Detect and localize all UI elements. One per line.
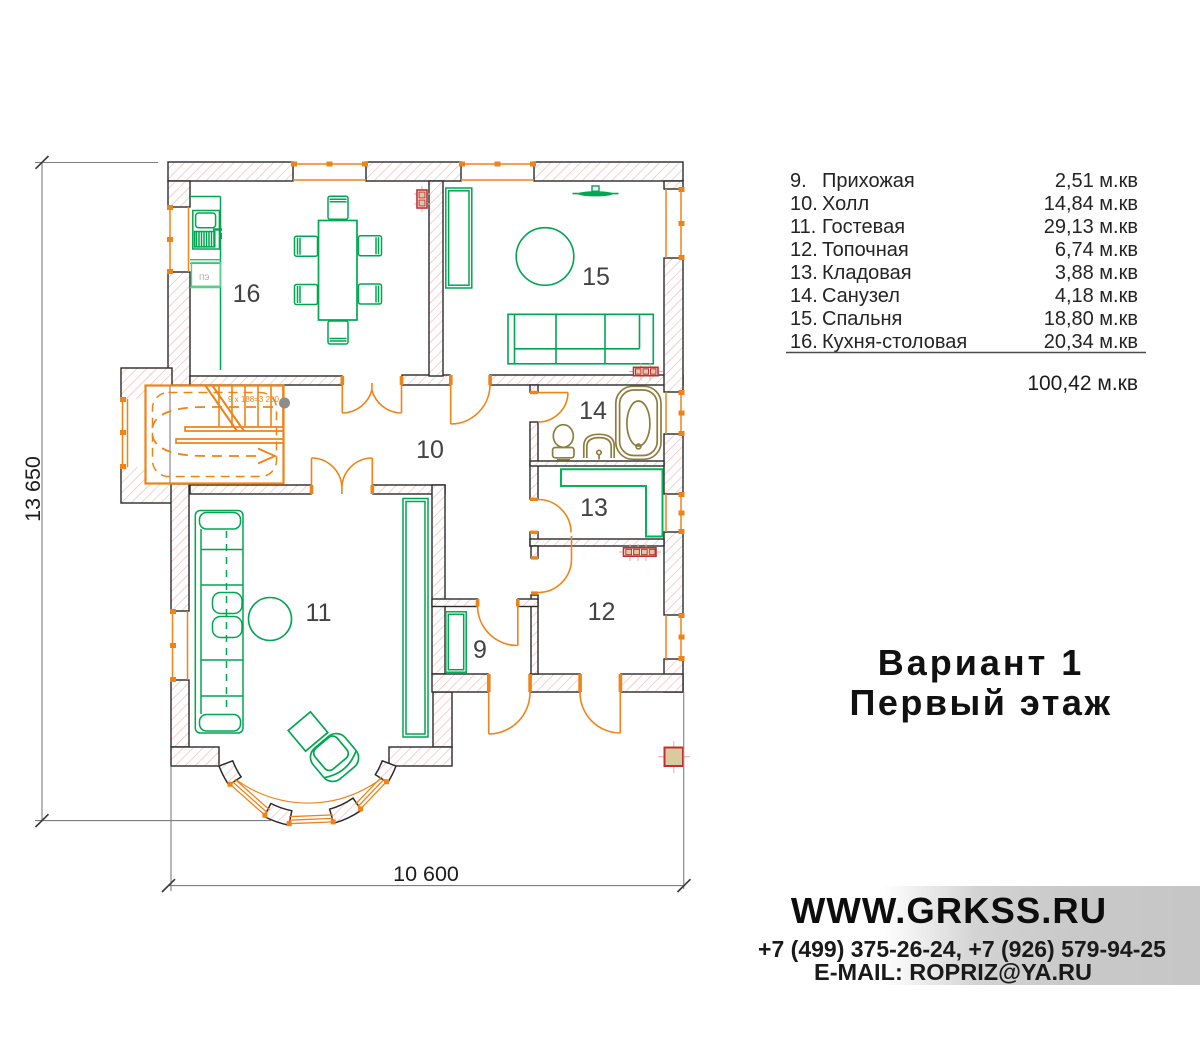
svg-text:9: 9 [473,636,487,664]
svg-text:12.: 12. [790,239,818,261]
svg-text:Вариант 1: Вариант 1 [878,642,1085,683]
svg-text:10: 10 [416,436,444,464]
svg-text:15: 15 [582,263,610,291]
svg-text:Первый этаж: Первый этаж [850,682,1113,723]
svg-text:11.: 11. [790,216,816,238]
svg-text:Прихожая: Прихожая [822,170,915,192]
svg-text:10.: 10. [790,193,818,215]
svg-text:18,80 м.кв: 18,80 м.кв [1044,308,1138,330]
svg-text:13: 13 [580,494,608,522]
svg-text:Кухня-столовая: Кухня-столовая [822,331,967,353]
svg-text:Гостевая: Гостевая [822,216,905,238]
svg-text:14: 14 [579,397,607,425]
svg-text:WWW.GRKSS.RU: WWW.GRKSS.RU [791,890,1107,931]
svg-text:Топочная: Топочная [822,239,909,261]
svg-text:6,74 м.кв: 6,74 м.кв [1055,239,1138,261]
svg-text:Кладовая: Кладовая [822,262,912,284]
svg-text:15.: 15. [790,308,818,330]
svg-text:14,84 м.кв: 14,84 м.кв [1044,193,1138,215]
svg-text:12: 12 [588,598,616,626]
svg-text:13.: 13. [790,262,818,284]
svg-text:Спальня: Спальня [822,308,902,330]
svg-text:Холл: Холл [822,193,869,215]
svg-text:11: 11 [306,599,332,627]
svg-text:16: 16 [233,280,261,308]
svg-text:E-MAIL: ROPRIZ@YA.RU: E-MAIL: ROPRIZ@YA.RU [814,959,1092,985]
svg-text:9.: 9. [790,170,807,192]
svg-text:9 х 188=3 200: 9 х 188=3 200 [228,395,279,404]
svg-text:20,34 м.кв: 20,34 м.кв [1044,331,1138,353]
svg-text:3,88 м.кв: 3,88 м.кв [1055,262,1138,284]
svg-text:16.: 16. [790,331,818,353]
svg-text:100,42 м.кв: 100,42 м.кв [1027,372,1138,395]
svg-text:пэ: пэ [199,272,210,283]
svg-text:2,51 м.кв: 2,51 м.кв [1055,170,1138,192]
svg-text:13 650: 13 650 [21,456,45,522]
svg-text:10 600: 10 600 [393,862,459,886]
svg-text:Санузел: Санузел [822,285,900,307]
svg-text:29,13 м.кв: 29,13 м.кв [1044,216,1138,238]
svg-text:14.: 14. [790,285,818,307]
svg-text:4,18 м.кв: 4,18 м.кв [1055,285,1138,307]
